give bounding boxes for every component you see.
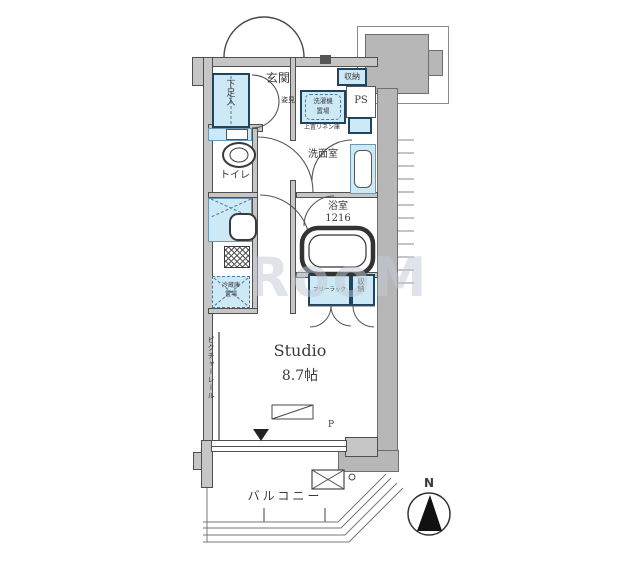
label-storage-top: 収納 [338,72,366,81]
label-room-size: 8.7帖 [270,368,330,384]
balcony-partition-nub [193,452,202,470]
label-shoe-cabinet: 下足入 [224,79,234,106]
entrance-door-arc [224,17,304,57]
toilet-tank-icon [226,129,248,140]
picture-rail-line [218,332,220,440]
label-washer-2: 置場 [304,108,342,115]
toilet-bowl-icon [223,143,255,167]
label-fridge-1: 冷蔵庫 [213,283,249,290]
wall-left-stub [192,57,204,86]
label-room-name: Studio [268,342,332,360]
neighbor-block-step [428,50,443,76]
label-washer-1: 洗濯機 [304,98,342,105]
label-fridge-2: 置場 [213,292,249,299]
label-genkan: 玄関 [258,72,298,86]
ac-outdoor-unit-icon [312,470,344,489]
label-bathroom: 浴室 [313,201,363,213]
label-balcony: バルコニー [240,490,330,504]
studio-window [211,440,347,452]
label-picture-rail: ピクチャーレール [207,336,215,400]
floor-plan: 玄関 姿見 下足入 収納 PS 洗濯機 置場 上置リネン庫 洗面室 浴室 121… [0,0,640,569]
small-cabinet-box [348,117,372,134]
drain-icon [349,474,355,480]
stove-icon [224,246,250,268]
label-ps: PS [347,95,375,107]
label-bathroom-size: 1216 [313,213,363,225]
label-compass-n: N [421,477,437,491]
label-washroom: 洗面室 [299,149,347,161]
hall-door-arc [258,137,313,192]
studio-door-arc [260,195,310,245]
compass-icon [408,493,450,535]
counter-icon [272,405,313,419]
vanity-basin-icon [354,150,372,188]
wall-bottom-right [345,437,378,457]
watermark: RooM [248,246,430,309]
label-toilet: トイレ [215,170,255,182]
label-linen: 上置リネン庫 [298,125,346,132]
label-p-mark: P [325,420,337,430]
kitchen-counter [208,198,252,242]
label-mirror: 姿見 [268,96,308,104]
